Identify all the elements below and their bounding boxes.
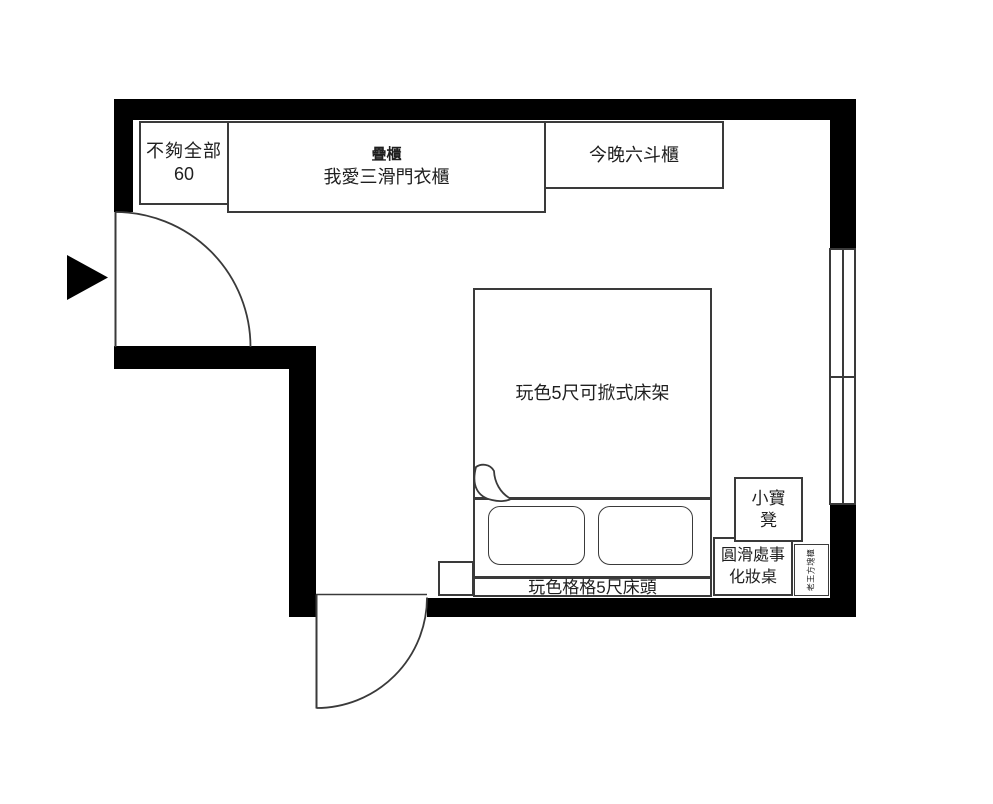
- wall-left-upper: [114, 99, 133, 212]
- makeup-table-label-line1: 圓滑處事: [721, 545, 785, 567]
- stool-label-line1: 小寶: [752, 488, 786, 510]
- shelf-unit: 不夠全部 60: [139, 121, 227, 205]
- bedroom-floor-plan: 不夠全部 60 疊櫃 我愛三滑門衣櫃 今晚六斗櫃 玩色5尺可掀式床架 玩色格格5…: [0, 0, 993, 804]
- wall-right-lower: [830, 505, 856, 617]
- bed: 玩色5尺可掀式床架: [473, 288, 712, 500]
- wardrobe-series-label: 疊櫃: [371, 144, 401, 165]
- window: [829, 248, 856, 505]
- wall-lower-left-horizontal: [114, 346, 316, 369]
- wall-top: [114, 99, 856, 120]
- window-divider-line: [831, 376, 854, 378]
- bottom-door-swing-arc: [317, 598, 428, 709]
- wardrobe: 疊櫃 我愛三滑門衣櫃: [227, 121, 546, 213]
- pillow-left: [488, 506, 585, 565]
- wall-bottom: [427, 598, 856, 617]
- headboard-label: 玩色格格5尺床頭: [475, 578, 710, 597]
- side-cabinet-label: 老王方塊櫃: [807, 549, 817, 592]
- bed-label: 玩色5尺可掀式床架: [515, 382, 669, 405]
- shelf-name: 不夠全部: [146, 140, 222, 163]
- entry-arrow-icon: [67, 255, 108, 300]
- stool-label-line2: 凳: [760, 510, 777, 532]
- makeup-table: 圓滑處事 化妝桌: [713, 537, 793, 596]
- shelf-size: 60: [174, 163, 194, 186]
- pillow-right: [598, 506, 693, 565]
- wall-right-upper: [830, 99, 856, 248]
- bedside-step-box: [438, 561, 474, 596]
- entry-door-swing-arc: [116, 212, 251, 347]
- wall-lower-left-vertical: [289, 346, 316, 617]
- makeup-table-label-line2: 化妝桌: [729, 567, 777, 589]
- side-cabinet: 老王方塊櫃: [794, 544, 829, 596]
- stool: 小寶 凳: [734, 477, 803, 542]
- dresser: 今晚六斗櫃: [546, 121, 724, 189]
- dresser-label: 今晚六斗櫃: [589, 144, 679, 167]
- headboard-unit: 玩色格格5尺床頭: [473, 500, 712, 597]
- wardrobe-name-label: 我愛三滑門衣櫃: [324, 165, 450, 190]
